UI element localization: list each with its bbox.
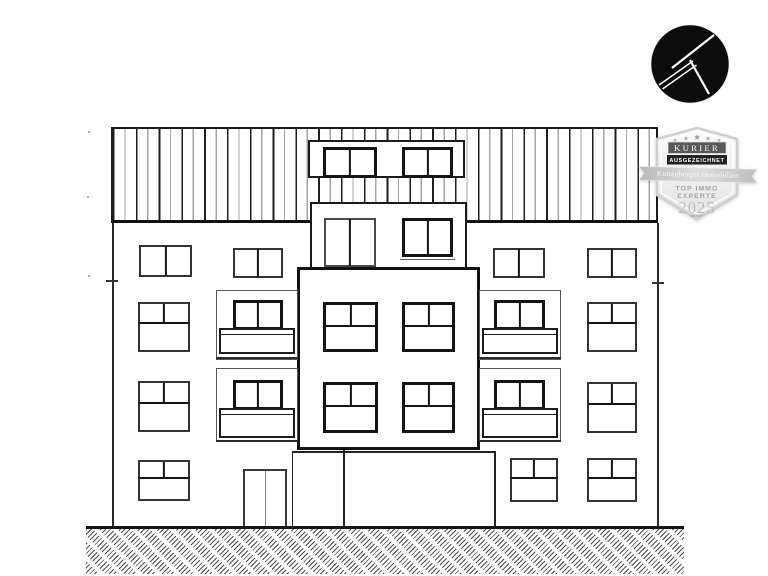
badge-issuer: IMWF <box>691 214 704 218</box>
wall-edge <box>494 452 496 527</box>
balcony-railing <box>219 408 295 438</box>
reference-dot <box>88 131 90 133</box>
window-mullion <box>257 249 259 277</box>
window <box>138 381 190 432</box>
entrance-door <box>243 469 287 527</box>
bay-window <box>402 382 455 433</box>
kuttenberger-logo-icon <box>649 22 731 106</box>
window-mullion <box>518 302 520 328</box>
window-mullion <box>427 305 429 326</box>
attic-french-window <box>324 218 376 267</box>
window-mullion <box>163 462 165 478</box>
award-badge: ★ ★ ★ ★ ★ KURIER AUSGEZEICHNET Kuttenber… <box>638 124 760 222</box>
window <box>587 248 637 278</box>
balcony-slab <box>479 440 561 442</box>
window <box>510 458 558 502</box>
window <box>493 248 545 278</box>
door-leaf-split <box>265 471 266 527</box>
railing-bar <box>221 414 293 415</box>
bay-window <box>323 382 378 433</box>
window-mullion <box>426 149 428 176</box>
award-label: AUSGEZEICHNET <box>669 158 724 164</box>
window-mullion <box>349 385 351 406</box>
railing-bar <box>484 414 556 415</box>
dormer-window <box>323 147 377 178</box>
window-mullion <box>426 220 428 255</box>
window <box>587 302 637 352</box>
balcony-window <box>233 300 283 330</box>
window <box>139 245 192 277</box>
attic-window <box>402 218 453 257</box>
reference-dot <box>88 275 90 277</box>
star-icon: ★ <box>705 135 711 143</box>
reference-dot <box>87 196 89 198</box>
railing-bar <box>484 334 556 335</box>
wall-edge <box>343 450 345 527</box>
balcony-railing <box>482 328 558 354</box>
wall-edge <box>292 451 294 527</box>
bay-window <box>402 302 455 352</box>
balcony-slab <box>216 440 298 442</box>
railing-bar <box>221 334 293 335</box>
window-mullion <box>163 304 165 323</box>
window-mullion <box>257 382 259 408</box>
star-icon: ★ <box>683 135 689 143</box>
window-mullion <box>611 384 613 404</box>
window <box>587 458 637 502</box>
window-mullion <box>349 219 351 266</box>
window-mullion <box>257 302 259 328</box>
balcony-window <box>494 300 545 330</box>
balcony-railing <box>219 328 295 354</box>
window-mullion <box>163 383 165 403</box>
badge-title-line1: TOP IMMO <box>676 186 719 193</box>
window-mullion <box>427 385 429 406</box>
publisher-label: KURIER <box>674 143 720 153</box>
screenshot-root: ★ ★ ★ ★ ★ KURIER AUSGEZEICHNET Kuttenber… <box>0 0 768 576</box>
window-mullion <box>518 249 520 277</box>
balcony-window <box>233 380 283 410</box>
window <box>138 460 190 501</box>
window-mullion <box>611 304 613 323</box>
window-mullion <box>518 382 520 408</box>
window <box>587 382 637 433</box>
dormer-window <box>402 147 453 178</box>
balcony-slab <box>479 357 561 359</box>
window-mullion <box>349 305 351 326</box>
window-sill <box>400 259 455 261</box>
level-tick <box>652 282 664 284</box>
balcony-railing <box>482 408 558 438</box>
window-mullion <box>349 149 351 176</box>
window-mullion <box>611 460 613 478</box>
bay-window <box>323 302 378 352</box>
balcony-window <box>494 380 545 410</box>
window-mullion <box>533 460 535 478</box>
window-mullion <box>164 246 166 276</box>
window <box>233 248 283 278</box>
ground-hatch <box>86 529 684 574</box>
balcony-slab <box>216 357 298 359</box>
star-icon: ★ <box>693 133 701 143</box>
window <box>138 302 190 352</box>
wall-edge <box>292 451 496 453</box>
window-mullion <box>611 249 613 277</box>
level-tick <box>106 280 118 282</box>
